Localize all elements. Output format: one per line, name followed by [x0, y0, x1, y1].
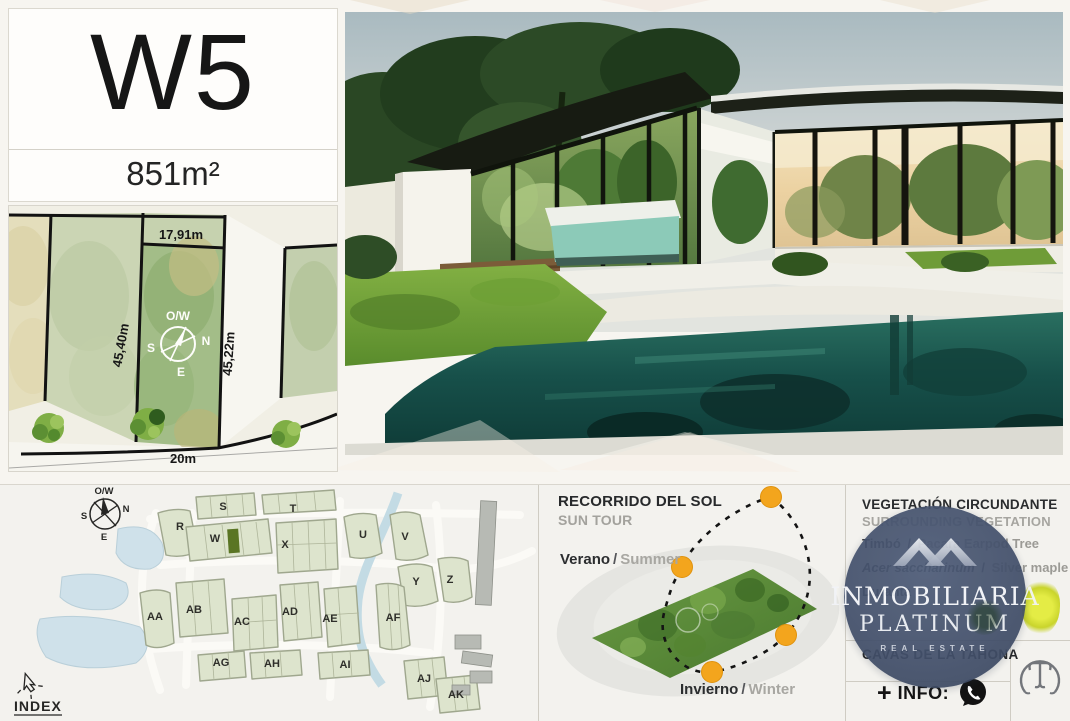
winter-en: Winter: [749, 681, 796, 698]
winter-label: Invierno/Winter: [680, 681, 795, 698]
block-label: AK: [448, 689, 464, 701]
plan-compass-east: E: [177, 365, 185, 379]
sun-dot: [776, 625, 797, 646]
block-label: Y: [412, 576, 420, 588]
block-label: T: [290, 503, 297, 515]
poster: W5 851m²: [0, 0, 1070, 721]
lot-plan: O/W N S E 17,91m 45,40m 45,22m 20m: [8, 205, 338, 472]
tahona-emblem-icon: [1017, 650, 1063, 702]
map-highlight-lot: [227, 529, 240, 554]
lot-id: W5: [9, 0, 337, 147]
block-label: AF: [386, 612, 401, 624]
map-index: INDEX: [12, 669, 62, 715]
house-render-image: [345, 12, 1063, 455]
block-label: AC: [234, 616, 250, 628]
block-label: AH: [264, 658, 280, 670]
block-label: S: [219, 501, 226, 513]
site-map: R S W T X U V Y Z AA AB AC AD AE AF AG A: [0, 485, 538, 721]
sun-tour-subtitle: SUN TOUR: [558, 512, 632, 528]
house-render: [345, 12, 1063, 455]
sun-dot: [761, 487, 782, 508]
block-label: AI: [340, 659, 351, 671]
block-label: X: [281, 539, 289, 551]
map-compass-east: E: [101, 532, 107, 543]
block-label: R: [176, 521, 184, 533]
block-label: V: [401, 531, 409, 543]
lot-title-card: W5 851m²: [8, 8, 338, 202]
summer-en: Summer: [620, 551, 680, 568]
block-label: Z: [447, 574, 454, 586]
map-compass-west: O/W: [95, 486, 114, 497]
lot-area: 851m²: [9, 155, 337, 193]
block-label: AB: [186, 604, 202, 616]
sun-tour-title: RECORRIDO DEL SOL: [558, 493, 722, 510]
map-compass-south: S: [81, 511, 87, 522]
brand-logo: INMOBILIARIA PLATINUM REAL ESTATE: [844, 506, 1026, 688]
block-label: AD: [282, 606, 298, 618]
roof-logo-icon: [887, 528, 983, 576]
brand-line3: REAL ESTATE: [880, 644, 989, 653]
dim-bottom: 20m: [170, 451, 196, 466]
courtyard: [697, 108, 775, 264]
dim-right: 45,22m: [219, 331, 237, 376]
title-divider: [9, 149, 337, 150]
map-compass-north: N: [123, 504, 130, 515]
summer-label: Verano/Summer: [560, 551, 680, 568]
block-label: AJ: [417, 673, 431, 685]
block-label: AG: [213, 657, 230, 669]
dim-top: 17,91m: [159, 227, 203, 242]
sun-dot: [702, 662, 723, 683]
block-label: AA: [147, 611, 163, 623]
sun-tour-panel: RECORRIDO DEL SOL SUN TOUR Verano/Summer…: [538, 485, 845, 721]
plus-sign: +: [877, 681, 892, 706]
winter-sep: /: [738, 681, 748, 698]
plan-compass-south: S: [147, 341, 155, 355]
block-label: U: [359, 529, 367, 541]
block-label: W: [210, 533, 221, 545]
brand-line1: INMOBILIARIA: [830, 582, 1039, 611]
summer-sep: /: [610, 551, 620, 568]
site-map-drawing: R S W T X U V Y Z AA AB AC AD AE AF AG A: [0, 485, 538, 721]
block-label: AE: [322, 613, 337, 625]
index-label: INDEX: [14, 698, 62, 714]
plan-compass-north: N: [202, 334, 211, 348]
plan-compass-west: O/W: [166, 309, 191, 323]
lot-plan-drawing: O/W N S E 17,91m 45,40m 45,22m 20m: [9, 206, 337, 471]
summer-es: Verano: [560, 551, 610, 568]
winter-es: Invierno: [680, 681, 738, 698]
